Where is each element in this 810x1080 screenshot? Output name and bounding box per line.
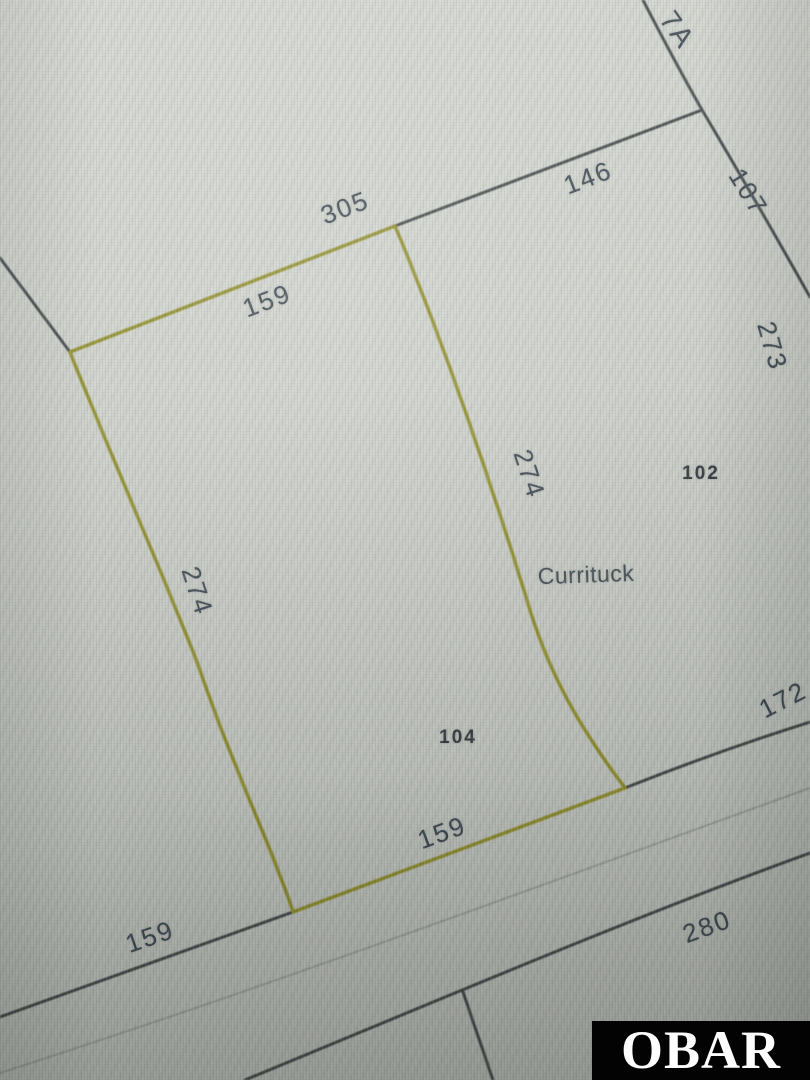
highlight-boundary-east xyxy=(395,226,625,788)
highlight-boundary-northwest xyxy=(70,226,395,352)
lot-number-102: 102 xyxy=(682,463,720,485)
obar-watermark: OBAR xyxy=(592,1021,810,1080)
plat-map-canvas[interactable]: 7A 305 146 107 273 159 274 102 Currituck… xyxy=(0,0,810,1080)
lot-number-104: 104 xyxy=(439,727,477,749)
parcel-divider-south xyxy=(463,992,493,1080)
boundary-line-146 xyxy=(395,110,702,226)
road-north-edge-right xyxy=(625,722,810,788)
county-label: Currituck xyxy=(537,560,634,590)
obar-watermark-text: OBAR xyxy=(621,1021,781,1080)
boundary-line-west-connector xyxy=(0,258,70,352)
highlight-boundary-south xyxy=(293,788,625,912)
highlight-boundary-west xyxy=(70,352,293,912)
